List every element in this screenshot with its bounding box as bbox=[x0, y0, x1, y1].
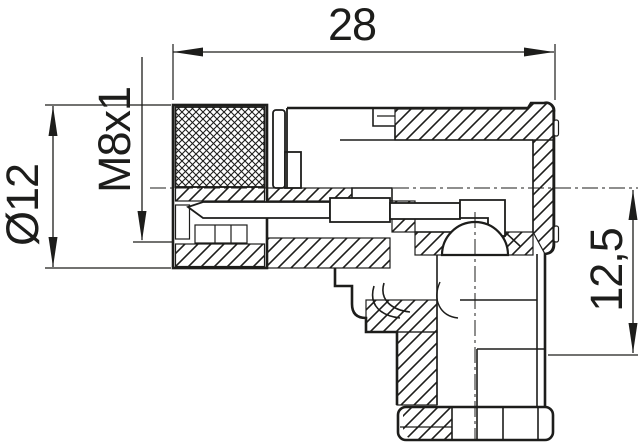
arrowhead-up bbox=[49, 106, 58, 136]
arrowhead-left bbox=[173, 48, 203, 57]
connector-section-drawing: 28 Ø12 M8x1 12,5 bbox=[0, 0, 640, 442]
coupling-nut-section bbox=[173, 105, 267, 268]
dimension-width-28 bbox=[173, 44, 555, 100]
dim-width-label: 28 bbox=[328, 0, 376, 50]
arrowhead-down bbox=[49, 237, 58, 267]
dim-height-label: 12,5 bbox=[581, 228, 632, 312]
knurl-pattern-area bbox=[176, 107, 265, 187]
arrowhead-down bbox=[629, 323, 638, 353]
arrowhead-down bbox=[138, 211, 147, 241]
technical-drawing-page: 28 Ø12 M8x1 12,5 bbox=[0, 0, 640, 442]
arrowhead-up bbox=[629, 190, 638, 220]
dim-diameter-label: Ø12 bbox=[0, 164, 48, 246]
dim-thread-label: M8x1 bbox=[89, 87, 140, 193]
arrowhead-right bbox=[524, 48, 554, 57]
